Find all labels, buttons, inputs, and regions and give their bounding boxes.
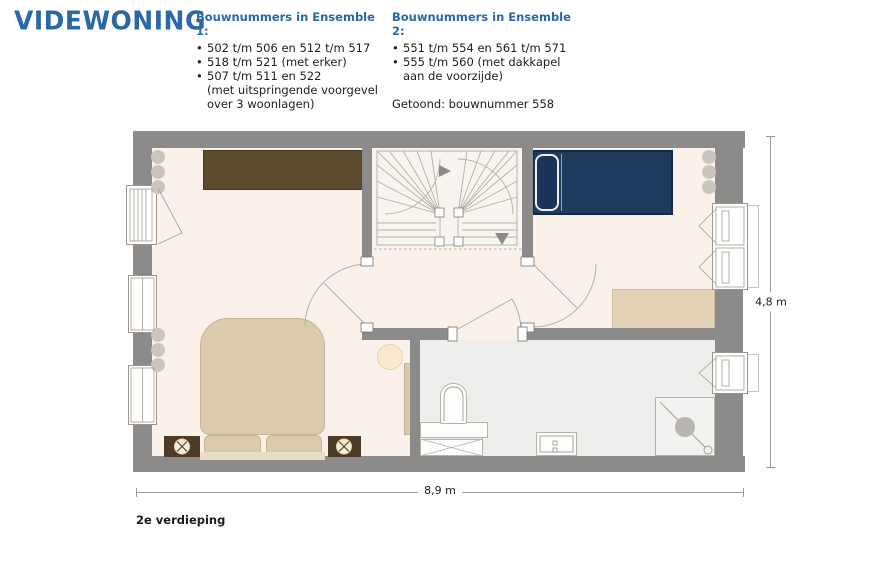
bullet-glyph: •: [392, 55, 403, 69]
page: VIDEWONING Bouwnummers in Ensemble 1: • …: [0, 0, 880, 568]
ensemble2-line: • 555 t/m 560 (met dakkapel: [392, 55, 582, 69]
wardrobe: [203, 150, 363, 190]
toilet-cistern: [420, 422, 488, 438]
dimension-width-label: 8,9 m: [418, 484, 462, 497]
dimension-height-label: 4,8 m: [753, 293, 789, 312]
ensemble1-line-text: (met uitspringende voorgevel: [207, 83, 378, 97]
ensemble1-line: over 3 woonlagen): [196, 97, 386, 111]
window-right-1: [712, 203, 748, 290]
ensemble2-title: Bouwnummers in Ensemble 2:: [392, 10, 582, 38]
ensemble2-line-text: 551 t/m 554 en 561 t/m 571: [403, 41, 566, 55]
ensemble1-line-text: 518 t/m 521 (met erker): [207, 55, 347, 69]
wall-right: [715, 131, 743, 472]
ensemble1-line: • 502 t/m 506 en 512 t/m 517: [196, 41, 386, 55]
wall-landing-south-b: [521, 328, 715, 340]
ensemble1-title: Bouwnummers in Ensemble 1:: [196, 10, 386, 38]
ensemble2-line: • 551 t/m 554 en 561 t/m 571: [392, 41, 582, 55]
ensemble1-line-text: over 3 woonlagen): [207, 97, 314, 111]
bullet-glyph: •: [196, 69, 207, 83]
ensemble2-column: Bouwnummers in Ensemble 2: • 551 t/m 554…: [392, 10, 582, 111]
wall-stairs-left: [362, 148, 372, 262]
mattress-line: [561, 154, 562, 211]
single-bed: [532, 150, 673, 215]
bullet-glyph: [196, 97, 207, 111]
dimension-tick: [743, 488, 744, 497]
ensemble1-line-text: 507 t/m 511 en 522: [207, 69, 321, 83]
dimension-width: 8,9 m: [136, 486, 744, 498]
dimension-tick: [136, 488, 137, 497]
single-bed-pillow: [537, 156, 557, 209]
wall-bathroom-west: [410, 340, 420, 456]
shower: [655, 397, 715, 456]
nightstand-left: [164, 436, 200, 457]
nightstand-right: [328, 436, 361, 457]
dimension-tick: [766, 467, 775, 468]
wall-stairs-right: [522, 148, 533, 262]
ensemble2-line-text: 555 t/m 560 (met dakkapel: [403, 55, 560, 69]
desk: [612, 289, 715, 330]
ensemble2-line: aan de voorzijde): [392, 69, 582, 83]
ensemble1-line: • 518 t/m 521 (met erker): [196, 55, 386, 69]
ensemble1-line: (met uitspringende voorgevel: [196, 83, 386, 97]
ensemble1-line: • 507 t/m 511 en 522: [196, 69, 386, 83]
bullet-glyph: •: [196, 55, 207, 69]
window-left-3: [128, 365, 157, 425]
shown-bouwnummer: Getoond: bouwnummer 558: [392, 97, 582, 111]
floor-staircase: [372, 148, 522, 250]
window-left-2: [128, 275, 157, 333]
bullet-glyph: •: [392, 41, 403, 55]
dimension-height: 4,8 m: [764, 136, 778, 468]
ensemble1-column: Bouwnummers in Ensemble 1: • 502 t/m 506…: [196, 10, 386, 111]
bullet-glyph: [392, 69, 403, 83]
toilet: [440, 383, 467, 424]
bullet-glyph: •: [196, 41, 207, 55]
floorplan: [133, 131, 745, 472]
stool: [377, 344, 403, 370]
duct-box: [420, 439, 483, 456]
window-left-1: [126, 185, 157, 245]
washbasin: [536, 432, 577, 456]
ensemble1-line-text: 502 t/m 506 en 512 t/m 517: [207, 41, 370, 55]
brand-logo: VIDEWONING: [14, 6, 206, 36]
dimension-tick: [766, 136, 775, 137]
ensemble2-line-text: aan de voorzijde): [403, 69, 503, 83]
floor-name-label: 2e verdieping: [136, 513, 225, 527]
double-bed: [200, 318, 325, 435]
wall-landing-south-a: [362, 328, 455, 340]
wall-top: [133, 131, 745, 148]
bullet-glyph: [196, 83, 207, 97]
headboard: [200, 452, 325, 460]
window-right-2: [712, 352, 748, 394]
